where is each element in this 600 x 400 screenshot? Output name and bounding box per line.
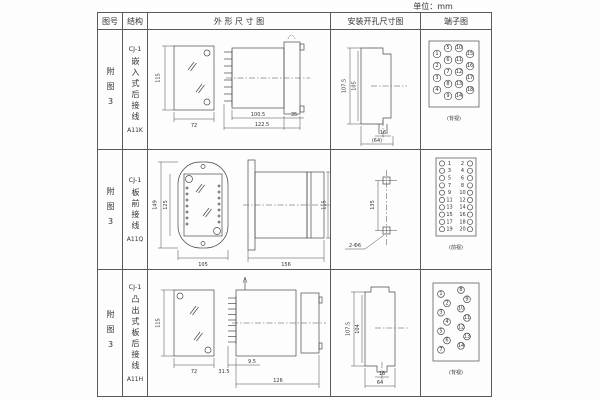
dimension-table: 图号 结构 外 形 尺 寸 图 安装开孔尺寸图 端子图 附图3 CJ-1 嵌入式… xyxy=(97,12,492,397)
terminal-number: 3 xyxy=(448,168,451,174)
terminal-number: 5 xyxy=(448,175,451,181)
terminal-circle xyxy=(439,226,444,231)
terminal-number: 4 xyxy=(445,319,448,325)
terminal-number: 13 xyxy=(446,204,452,210)
terminal-number: 8 xyxy=(461,182,464,188)
terminal-number: 6 xyxy=(446,57,449,63)
row2-outline-cell: 149 125 105 156 115 xyxy=(148,150,331,270)
row1-terminal-cell: (背视) 123456789101112131415161718 xyxy=(421,30,491,150)
install-diagram-a11q: 135 2-Φ6 xyxy=(331,150,420,270)
svg-text:(64): (64) xyxy=(372,138,382,144)
model-name: CJ-1 xyxy=(129,176,142,184)
terminal-circle xyxy=(439,212,444,217)
terminal-circle xyxy=(439,160,444,165)
svg-text:16: 16 xyxy=(379,371,385,377)
header-terminal: 端子图 xyxy=(421,13,491,30)
svg-text:31.5: 31.5 xyxy=(218,369,229,375)
terminal-circle xyxy=(467,219,472,224)
terminal-number: 1 xyxy=(435,51,438,57)
row3-install-cell: 107.5 104 16 64 xyxy=(331,270,421,396)
terminal-number: 17 xyxy=(446,219,452,225)
svg-text:9.5: 9.5 xyxy=(248,359,256,365)
terminal-number: 1 xyxy=(439,291,442,297)
side-view: 100.5 35 122.5 xyxy=(224,35,310,130)
terminal-number: 4 xyxy=(435,87,438,93)
header-structure: 结构 xyxy=(123,13,148,30)
outline-diagram-a11k: 115 72 100.5 35 xyxy=(148,30,330,150)
svg-text:105: 105 xyxy=(198,262,208,268)
terminal-number: 9 xyxy=(446,93,449,99)
terminal-circle xyxy=(439,204,444,209)
terminal-number: 7 xyxy=(439,347,442,353)
svg-text:125: 125 xyxy=(163,200,169,210)
front-view: 115 72 xyxy=(156,290,215,375)
terminal-number: 11 xyxy=(464,315,470,321)
terminal-number: 7 xyxy=(448,182,451,188)
svg-text:72: 72 xyxy=(191,369,197,375)
svg-text:(背视): (背视) xyxy=(447,115,461,122)
fig-no-text: 附图3 xyxy=(106,187,114,233)
svg-text:126: 126 xyxy=(273,378,283,384)
model-code: A11H xyxy=(127,376,143,383)
terminal-number: 10 xyxy=(458,306,464,312)
terminal-number: 2 xyxy=(461,160,464,166)
terminal-number: 15 xyxy=(467,51,473,57)
terminal-number: 14 xyxy=(459,204,465,210)
terminal-circle xyxy=(439,168,444,173)
terminal-number: 4 xyxy=(461,168,464,174)
row2-install-cell: 135 2-Φ6 xyxy=(331,150,421,270)
terminal-number: 6 xyxy=(445,338,448,344)
row3-fig-no: 附图3 xyxy=(98,270,123,396)
terminal-number: 13 xyxy=(464,334,470,340)
row3-structure: CJ-1 凸出式板后接线 A11H xyxy=(123,270,148,396)
terminal-number: 2 xyxy=(435,63,438,69)
terminal-number: 8 xyxy=(459,287,462,293)
terminal-number: 19 xyxy=(446,226,452,232)
terminal-number: 5 xyxy=(439,328,442,334)
model-code: A11K xyxy=(127,127,143,134)
model-name: CJ-1 xyxy=(129,283,142,291)
terminal-number: 9 xyxy=(448,190,451,196)
svg-text:64: 64 xyxy=(377,380,383,386)
model-code: A11Q xyxy=(127,236,143,243)
terminal-number: 16 xyxy=(467,63,473,69)
terminal-number: 11 xyxy=(446,197,452,203)
outline-diagram-a11h: 115 72 31.5 9.5 xyxy=(148,270,330,396)
row2-fig-no: 附图3 xyxy=(98,150,123,270)
svg-text:100.5: 100.5 xyxy=(251,112,265,118)
terminal-number: 12 xyxy=(456,69,462,75)
terminal-circle xyxy=(467,190,472,195)
terminal-number: 9 xyxy=(465,296,468,302)
terminal-circle xyxy=(467,160,472,165)
svg-text:107.5: 107.5 xyxy=(346,322,352,336)
terminal-circle xyxy=(467,204,472,209)
terminal-number: 15 xyxy=(446,212,452,218)
front-view: 149 125 105 xyxy=(153,162,229,268)
row3-terminal-cell: (背视) 1234567891011121314 xyxy=(421,270,491,396)
terminal-diagram-back-view-a11h: (背视) 1234567891011121314 xyxy=(421,270,491,396)
model-name: CJ-1 xyxy=(129,45,142,53)
install-diagram-a11k: 107.5 105 16 (64) xyxy=(331,30,420,150)
terminal-number: 12 xyxy=(458,324,464,330)
terminal-circle xyxy=(439,175,444,180)
terminal-number: 16 xyxy=(459,212,465,218)
svg-text:115: 115 xyxy=(156,318,162,328)
terminal-number: 7 xyxy=(446,69,449,75)
side-view: 31.5 9.5 126 xyxy=(218,277,326,388)
terminal-number: 12 xyxy=(459,197,465,203)
terminal-circle xyxy=(467,182,472,187)
svg-text:115: 115 xyxy=(156,73,162,83)
svg-text:(背视): (背视) xyxy=(449,369,463,376)
row1-fig-no: 附图3 xyxy=(98,30,123,150)
row2-terminal-cell: (前视) 1234567891011121314151617181920 xyxy=(421,150,491,270)
terminal-circle xyxy=(467,175,472,180)
svg-text:16: 16 xyxy=(380,130,386,136)
header-outline: 外 形 尺 寸 图 xyxy=(148,13,331,30)
terminal-circle xyxy=(467,168,472,173)
terminal-number: 14 xyxy=(456,93,462,99)
side-view: 156 115 xyxy=(243,160,330,268)
svg-text:35: 35 xyxy=(291,112,297,118)
structure-text: 嵌入式后接线 xyxy=(131,57,139,123)
svg-text:105: 105 xyxy=(352,81,358,91)
terminal-number: 5 xyxy=(446,45,449,51)
svg-text:(前视): (前视) xyxy=(449,244,463,251)
terminal-number: 3 xyxy=(439,310,442,316)
terminal-number: 6 xyxy=(461,175,464,181)
svg-text:115: 115 xyxy=(322,200,328,210)
front-view: 115 72 xyxy=(156,46,215,129)
header-fig-no: 图号 xyxy=(98,13,123,30)
terminal-number: 11 xyxy=(456,57,462,63)
structure-text: 板前接线 xyxy=(131,188,139,232)
terminal-number: 18 xyxy=(459,219,465,225)
terminal-circle xyxy=(439,219,444,224)
fig-no-text: 附图3 xyxy=(106,67,114,113)
header-install: 安装开孔尺寸图 xyxy=(331,13,421,30)
terminal-number: 17 xyxy=(467,75,473,81)
terminal-circle xyxy=(439,197,444,202)
svg-text:122.5: 122.5 xyxy=(255,122,269,128)
terminal-number: 14 xyxy=(458,343,464,349)
row1-outline-cell: 115 72 100.5 35 xyxy=(148,30,331,150)
terminal-number: 20 xyxy=(459,226,465,232)
terminal-circle xyxy=(467,212,472,217)
terminal-circle xyxy=(439,190,444,195)
structure-text: 凸出式板后接线 xyxy=(131,295,139,372)
row1-install-cell: 107.5 105 16 (64) xyxy=(331,30,421,150)
svg-text:156: 156 xyxy=(281,262,291,268)
row1-structure: CJ-1 嵌入式后接线 A11K xyxy=(123,30,148,150)
svg-text:135: 135 xyxy=(370,200,376,210)
terminal-number: 10 xyxy=(456,45,462,51)
outline-diagram-a11q: 149 125 105 156 115 xyxy=(148,150,330,270)
terminal-circle xyxy=(467,197,472,202)
svg-text:107.5: 107.5 xyxy=(342,78,348,92)
unit-label: 单位：mm xyxy=(398,1,468,12)
terminal-diagram-back-view-a11k: (背视) 123456789101112131415161718 xyxy=(421,30,491,150)
terminal-number: 8 xyxy=(446,81,449,87)
terminal-number: 2 xyxy=(445,300,448,306)
terminal-number: 13 xyxy=(456,81,462,87)
terminal-number: 18 xyxy=(467,87,473,93)
terminal-number: 1 xyxy=(448,160,451,166)
terminal-number: 3 xyxy=(435,75,438,81)
fig-no-text: 附图3 xyxy=(106,310,114,356)
svg-text:149: 149 xyxy=(153,200,159,210)
terminal-number: 10 xyxy=(459,190,465,196)
terminal-circle xyxy=(439,182,444,187)
install-diagram-a11h: 107.5 104 16 64 xyxy=(331,270,420,396)
row2-structure: CJ-1 板前接线 A11Q xyxy=(123,150,148,270)
terminal-diagram-front-view-a11q: (前视) 1234567891011121314151617181920 xyxy=(421,150,491,270)
row3-outline-cell: 115 72 31.5 9.5 xyxy=(148,270,331,396)
svg-text:2-Φ6: 2-Φ6 xyxy=(349,243,361,249)
svg-text:104: 104 xyxy=(355,324,361,334)
svg-text:72: 72 xyxy=(191,123,197,129)
terminal-circle xyxy=(467,226,472,231)
